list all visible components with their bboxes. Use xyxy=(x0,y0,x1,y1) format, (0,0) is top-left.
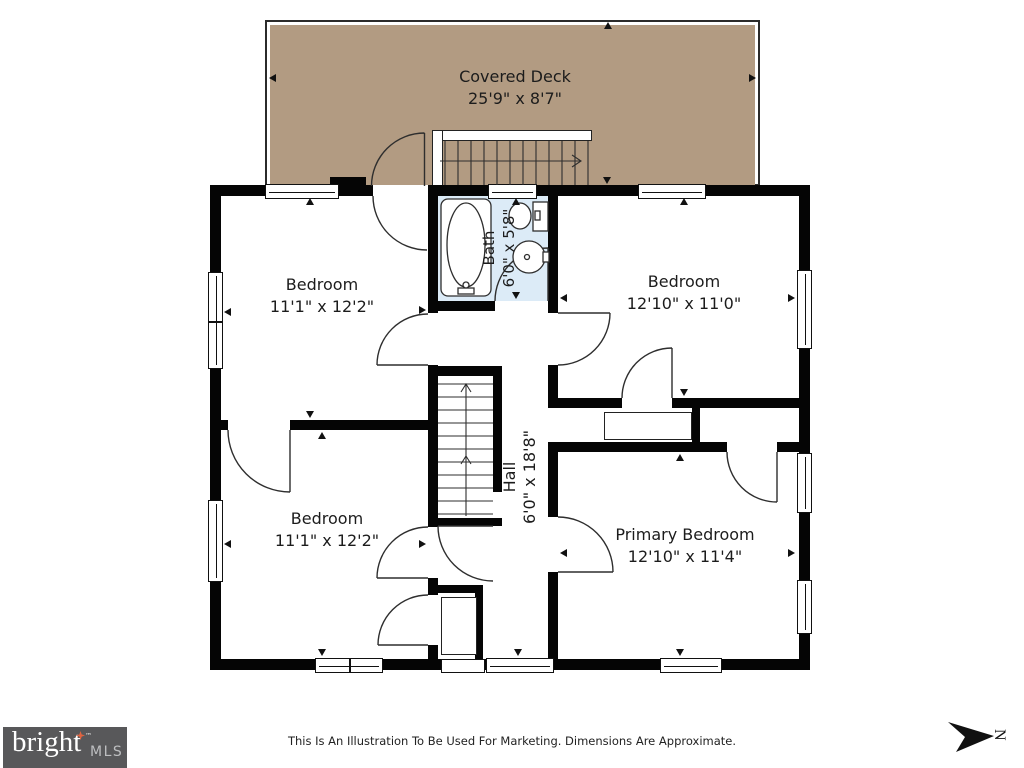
door-bedroom-top-left xyxy=(377,314,428,365)
label-bedroom-top-left: Bedroom 11'1" x 12'2" xyxy=(270,274,374,318)
window-pane-line xyxy=(805,457,806,509)
wall xyxy=(548,398,810,408)
window-pane-line xyxy=(269,192,335,193)
door-bedroom-top-right-closet xyxy=(622,348,672,398)
window-pane-line xyxy=(492,192,533,193)
room-name: Bath xyxy=(479,209,499,288)
door-bedroom-top-right xyxy=(558,313,610,365)
window-pane-line xyxy=(642,192,702,193)
deck-stair-stringer xyxy=(432,130,592,141)
door-opening xyxy=(428,595,438,645)
window xyxy=(488,184,537,199)
door-deck-inner-arc xyxy=(373,196,427,250)
window xyxy=(315,658,383,673)
door-opening xyxy=(228,420,290,430)
window xyxy=(797,453,812,513)
window-pane-line xyxy=(216,504,217,578)
logo-suffix: MLS xyxy=(90,744,123,760)
wall xyxy=(428,518,502,526)
label-primary-bedroom: Primary Bedroom 12'10" x 11'4" xyxy=(615,524,754,568)
door-bottom-left-closet xyxy=(378,595,428,645)
room-dims: 25'9" x 8'7" xyxy=(459,88,571,110)
door-primary-entry xyxy=(558,517,613,572)
window xyxy=(797,270,812,349)
wall xyxy=(428,366,502,376)
room-dims: 11'1" x 12'2" xyxy=(270,296,374,318)
room-dims: 6'0" x 18'8" xyxy=(520,430,540,524)
label-hall: Hall 6'0" x 18'8" xyxy=(500,430,540,524)
room-dims: 6'0" x 5'8" xyxy=(499,209,519,288)
label-bath: Bath 6'0" x 5'8" xyxy=(479,209,519,288)
room-name: Bedroom xyxy=(627,271,741,293)
window-pane-line xyxy=(664,666,718,667)
door-opening xyxy=(727,442,777,452)
room-name: Bedroom xyxy=(270,274,374,296)
window-pane-line xyxy=(490,666,550,667)
door-opening xyxy=(428,313,438,365)
window xyxy=(660,658,722,673)
window-divider xyxy=(349,659,351,672)
label-bedroom-top-right: Bedroom 12'10" x 11'0" xyxy=(627,271,741,315)
window-pane-line xyxy=(805,274,806,345)
room-name: Hall xyxy=(500,430,520,524)
window-pane-line xyxy=(805,584,806,630)
door-opening xyxy=(622,398,672,408)
window xyxy=(208,272,223,369)
window xyxy=(265,184,339,199)
brightmls-logo: bright ™ MLS xyxy=(3,727,127,768)
stairs-up-arrow xyxy=(461,384,471,464)
window xyxy=(208,500,223,582)
room-dims: 12'10" x 11'0" xyxy=(627,293,741,315)
door-hall-closet xyxy=(438,526,493,581)
door-primary-closet xyxy=(727,452,777,502)
door-opening xyxy=(373,185,428,196)
stairs-treads xyxy=(438,384,493,514)
room-name: Primary Bedroom xyxy=(615,524,754,546)
window xyxy=(486,658,554,673)
disclaimer-text: This Is An Illustration To Be Used For M… xyxy=(0,734,1024,748)
door-opening xyxy=(548,313,558,365)
label-bedroom-bottom-left: Bedroom 11'1" x 12'2" xyxy=(275,508,379,552)
deck-stair-stringer xyxy=(432,130,443,189)
door-opening xyxy=(548,408,558,442)
door-bottom-left-entry xyxy=(377,527,428,578)
door-opening xyxy=(495,301,548,311)
wall-panel xyxy=(441,659,485,673)
closet-shelf xyxy=(441,597,477,655)
window xyxy=(638,184,706,199)
logo-trademark: ™ xyxy=(85,732,92,740)
label-covered-deck: Covered Deck 25'9" x 8'7" xyxy=(459,66,571,110)
door-opening xyxy=(428,527,438,578)
room-name: Covered Deck xyxy=(459,66,571,88)
room-dims: 11'1" x 12'2" xyxy=(275,530,379,552)
window xyxy=(797,580,812,634)
room-name: Bedroom xyxy=(275,508,379,530)
door-bedroom-bottom-left xyxy=(228,430,290,492)
floorplan-canvas: N Covered Deck 25'9" x 8'7" Bedroom 11'1… xyxy=(0,0,1024,768)
door-opening xyxy=(548,517,558,572)
closet-shelf xyxy=(604,412,692,440)
window-divider xyxy=(209,321,222,323)
room-dims: 12'10" x 11'4" xyxy=(615,546,754,568)
logo-wordmark: bright xyxy=(12,726,81,759)
